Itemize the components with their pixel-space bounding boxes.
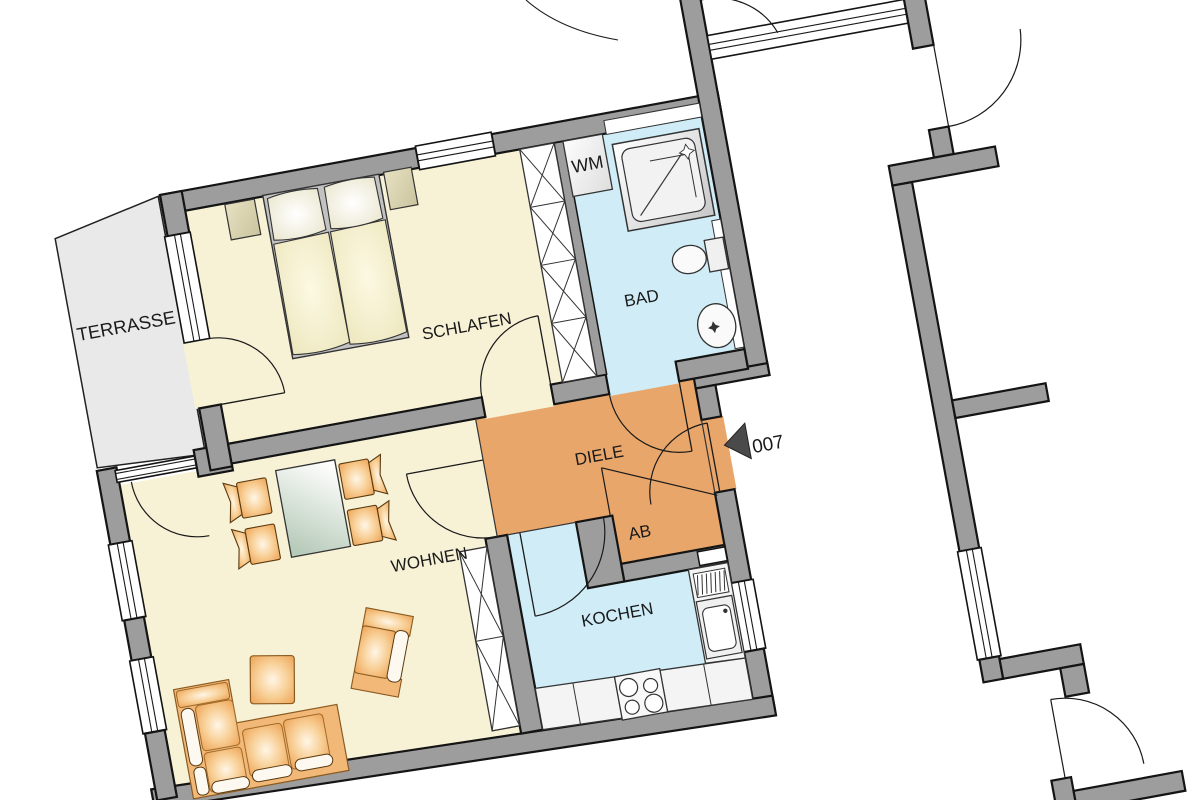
svg-text:007: 007 — [751, 432, 786, 458]
svg-text:AB: AB — [627, 521, 653, 544]
